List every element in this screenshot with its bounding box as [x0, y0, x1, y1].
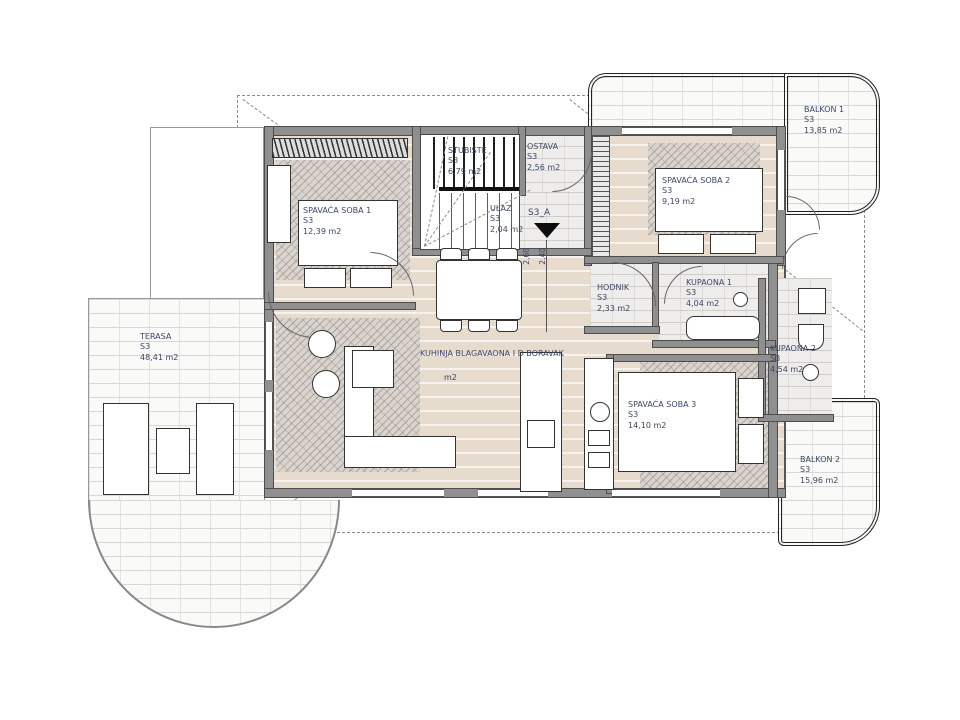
room-code: S3 — [686, 288, 732, 298]
room-name: HODNIK — [597, 283, 630, 293]
bedroom-2-pillow — [658, 234, 704, 254]
room-area: 4,54 m2 — [770, 365, 816, 375]
room-area: 48,41 m2 — [140, 353, 178, 363]
room-code: S3 — [490, 214, 523, 224]
dimension-text: 2,60 — [522, 248, 531, 265]
pouf — [312, 370, 340, 398]
room-code: S3 — [448, 156, 487, 166]
shaft-wall-hatch — [592, 136, 610, 258]
room-name: KUHINJA BLAGAVAONA I D BORAVAK — [420, 349, 564, 359]
room-label-kuhinja-area: m2 — [444, 373, 457, 383]
room-name: STUBIŠTE — [448, 146, 487, 156]
kitchen-sink — [590, 402, 610, 422]
window — [352, 489, 444, 497]
coffee-table — [352, 350, 394, 388]
bedroom-1-pillow — [304, 268, 346, 288]
room-code: S3 — [140, 342, 178, 352]
room-label-ostava: OSTAVA S3 2,56 m2 — [527, 142, 560, 173]
room-label-kuhinja: KUHINJA BLAGAVAONA I D BORAVAK — [420, 349, 564, 359]
wall — [768, 260, 778, 498]
balcony-1 — [784, 73, 880, 215]
room-label-kupaona-1: KUPAONA 1 S3 4,04 m2 — [686, 278, 732, 309]
bathroom-2-shower — [798, 288, 826, 314]
room-code: S3 — [800, 465, 840, 475]
wall — [264, 126, 424, 136]
room-code: S3 — [303, 216, 371, 226]
section-marker-label: S3_A — [528, 208, 550, 220]
room-label-kupaona-2: KUPAONA 2 S3 4,54 m2 — [770, 344, 816, 375]
wall — [758, 414, 834, 422]
room-area: 6,79 m2 — [448, 167, 487, 177]
room-label-balkon-2: BALKON 2 S3 15,96 m2 — [800, 455, 840, 486]
kitchen-cabinet — [588, 430, 610, 446]
window — [265, 322, 273, 380]
pouf — [308, 330, 336, 358]
room-label-balkon-1: BALKON 1 S3 13,85 m2 — [804, 105, 844, 136]
room-name: TERASA — [140, 332, 178, 342]
room-area: 4,04 m2 — [686, 299, 732, 309]
room-name: KUPAONA 2 — [770, 344, 816, 354]
room-label-stubiste: STUBIŠTE S3 6,79 m2 — [448, 146, 487, 177]
dining-chair — [468, 320, 490, 332]
room-label-spavaca-soba-2: SPAVAĆA SOBA 2 S3 9,19 m2 — [662, 176, 730, 207]
room-area: 2,04 m2 — [490, 225, 523, 235]
terrace-sofa — [196, 403, 234, 495]
balcony-1-top — [588, 73, 788, 127]
room-label-ulaz: ULAZ S3 2,04 m2 — [490, 204, 523, 235]
room-area: 2,56 m2 — [527, 163, 560, 173]
terrace-table — [156, 428, 190, 474]
room-code: S3 — [770, 354, 816, 364]
bedroom-1-closet — [267, 165, 291, 243]
room-area: 13,85 m2 — [804, 126, 844, 136]
kitchen-island — [584, 358, 614, 490]
room-area: 12,39 m2 — [303, 227, 371, 237]
room-code: S3 — [597, 293, 630, 303]
dining-chair — [496, 248, 518, 260]
sofa — [344, 436, 456, 468]
terrace-upper-strip — [150, 127, 264, 299]
room-name: BALKON 1 — [804, 105, 844, 115]
bathroom-1-sink — [733, 292, 748, 307]
terrace-curved-edge — [88, 500, 340, 628]
room-code: S3 — [628, 410, 696, 420]
room-code: S3 — [662, 186, 730, 196]
room-code: S3 — [527, 152, 560, 162]
dining-chair — [468, 248, 490, 260]
bedroom-3-pillow — [738, 424, 764, 464]
room-name: SPAVAĆA SOBA 1 — [303, 206, 371, 216]
wall — [584, 126, 592, 266]
wall — [606, 354, 776, 362]
room-name: OSTAVA — [527, 142, 560, 152]
terrace-sofa — [103, 403, 149, 495]
bedroom-1-wardrobe — [272, 138, 408, 158]
bedroom-2-pillow — [710, 234, 756, 254]
dining-chair — [496, 320, 518, 332]
room-label-terasa: TERASA S3 48,41 m2 — [140, 332, 178, 363]
room-label-spavaca-soba-3: SPAVAĆA SOBA 3 S3 14,10 m2 — [628, 400, 696, 431]
room-name: KUPAONA 1 — [686, 278, 732, 288]
window — [777, 150, 785, 210]
dining-chair — [440, 320, 462, 332]
room-area: 9,19 m2 — [662, 197, 730, 207]
kitchen-cabinet — [588, 452, 610, 468]
stair-landing-edge — [439, 187, 519, 191]
room-area: 15,96 m2 — [800, 476, 840, 486]
bathroom-1-tub — [686, 316, 760, 340]
room-area: 2,33 m2 — [597, 304, 630, 314]
dimension-text: 2,40 — [538, 248, 547, 265]
window — [622, 127, 732, 135]
room-label-hodnik: HODNIK S3 2,33 m2 — [597, 283, 630, 314]
room-code: S3 — [804, 115, 844, 125]
room-label-spavaca-soba-1: SPAVAĆA SOBA 1 S3 12,39 m2 — [303, 206, 371, 237]
room-name: SPAVAĆA SOBA 2 — [662, 176, 730, 186]
room-name: SPAVAĆA SOBA 3 — [628, 400, 696, 410]
room-name: ULAZ — [490, 204, 523, 214]
wall — [584, 326, 660, 334]
window — [265, 392, 273, 450]
section-marker-triangle-icon — [534, 223, 560, 238]
room-area: 14,10 m2 — [628, 421, 696, 431]
bedroom-3-pillow — [738, 378, 764, 418]
dining-chair — [440, 248, 462, 260]
window — [612, 489, 720, 497]
room-name: BALKON 2 — [800, 455, 840, 465]
room-area: m2 — [444, 373, 457, 383]
dining-table — [436, 260, 522, 320]
kitchen-stove — [527, 420, 555, 448]
floor-plan: BALKON 1 S3 13,85 m2 BALKON 2 S3 15,96 m… — [0, 0, 960, 720]
